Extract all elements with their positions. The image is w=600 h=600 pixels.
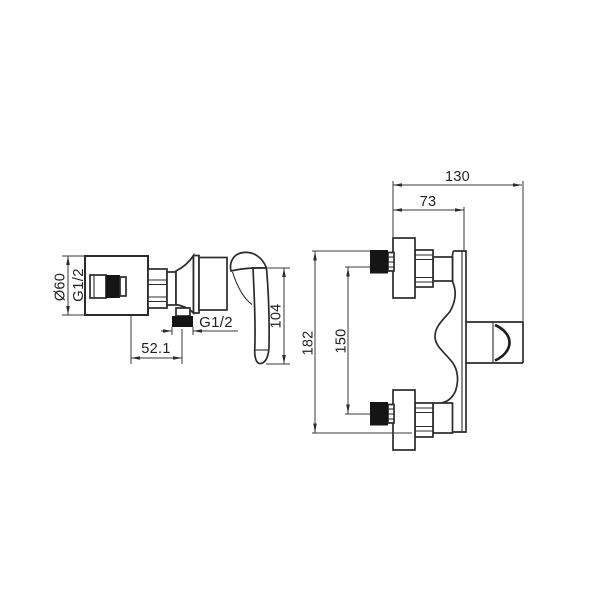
dim-valve-body-depth: 73: [420, 194, 437, 210]
connector-cap: [120, 277, 126, 296]
arrowhead: [282, 268, 286, 277]
inlet-thread-section: [106, 275, 120, 298]
outlet-neck: [176, 308, 190, 316]
cartridge-housing: [199, 258, 227, 311]
top-inlet-thread: [370, 250, 388, 274]
arrowhead: [163, 329, 172, 333]
label-inlet-thread: G1/2: [70, 268, 87, 302]
arrowhead: [313, 252, 317, 261]
arrowhead: [393, 208, 402, 212]
arrowhead: [131, 356, 140, 360]
dim-overall-height: 182: [300, 330, 316, 355]
arrowhead: [173, 356, 182, 360]
dim-escutcheon-diameter: Ø60: [52, 273, 68, 301]
arrowhead: [66, 256, 70, 265]
outlet-thread-section: [172, 316, 193, 327]
body-step: [167, 272, 176, 305]
arrowhead: [393, 183, 402, 187]
arrowhead: [282, 355, 286, 364]
body-bell: [176, 256, 194, 314]
arrowhead: [455, 208, 464, 212]
arrowhead: [346, 405, 350, 414]
inlet-connector: [90, 275, 106, 298]
bottom-escutcheon: [393, 390, 415, 450]
dim-overall-depth: 130: [445, 169, 470, 185]
knob-dome-arc: [495, 325, 510, 361]
mounting-nut: [148, 269, 167, 308]
arrowhead: [346, 268, 350, 277]
technical-drawing-canvas: Ø60 52.1 G1/2 104: [0, 0, 600, 600]
top-escutcheon: [393, 238, 415, 298]
label-outlet-thread: G1/2: [199, 314, 233, 331]
front-view: 130 73 182 150: [300, 169, 523, 450]
handle-lever: [253, 268, 269, 364]
drawing-svg: Ø60 52.1 G1/2 104: [0, 0, 600, 600]
bottom-inlet-thread: [370, 402, 388, 426]
dim-handle-length: 104: [268, 303, 284, 328]
bottom-connector: [433, 403, 453, 433]
elbow-underside-curve: [233, 272, 253, 305]
dim-inlet-spacing: 150: [333, 328, 349, 353]
top-connector: [433, 257, 453, 281]
arrowhead: [66, 306, 70, 315]
arrowhead: [313, 424, 317, 433]
dim-outlet-offset: 52.1: [141, 341, 170, 357]
arrowhead: [513, 183, 522, 187]
side-view: Ø60 52.1 G1/2 104: [52, 252, 290, 364]
